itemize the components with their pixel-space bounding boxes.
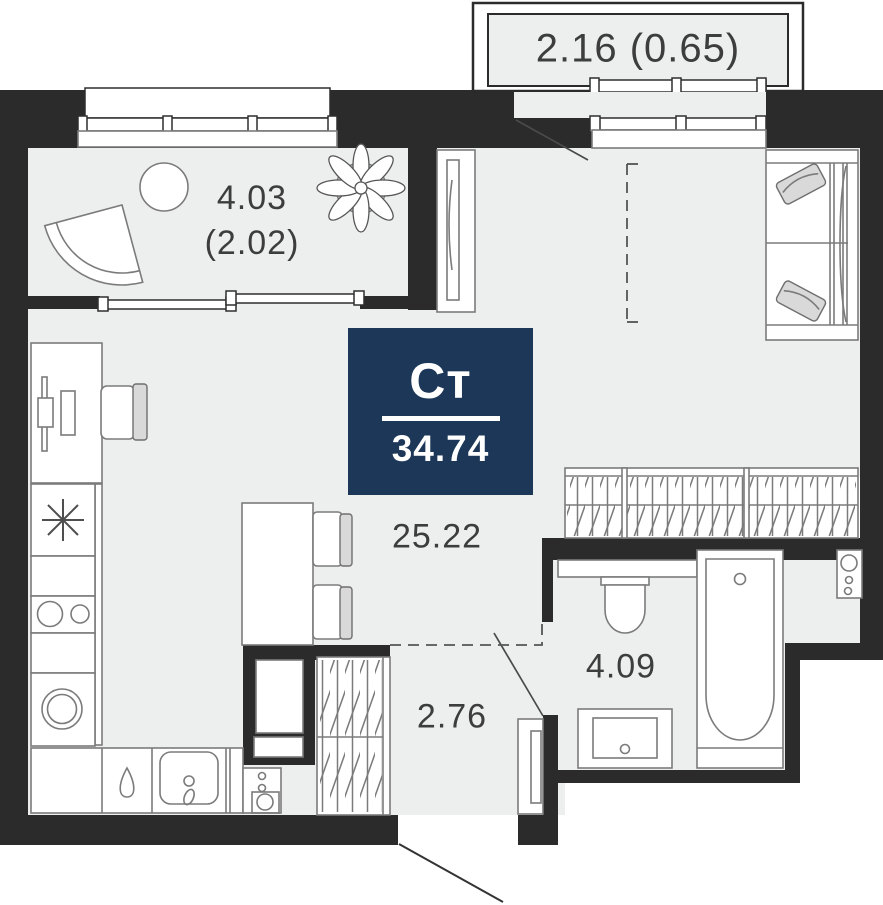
plant-icon: [317, 144, 405, 232]
electrical-panel: [243, 768, 281, 813]
sofa: [766, 150, 858, 340]
entrance-wardrobe: [317, 657, 390, 815]
fridge: [31, 484, 95, 556]
dining-chair: [313, 512, 352, 566]
floor-plan: 2.16 (0.65) 4.03 (2.02) 25.22 2.76 4.09 …: [0, 0, 883, 905]
balcony-top-area-label: 2.16 (0.65): [536, 27, 740, 72]
balcony-left-area-label: 4.03 (2.02): [205, 176, 300, 266]
balcony-left-area-paren: (2.02): [205, 221, 300, 266]
balcony-left-area-value: 4.03: [205, 176, 300, 221]
balcony-round-table: [140, 163, 188, 211]
unit-total-area: 34.74: [392, 430, 490, 467]
bathroom-sink: [578, 709, 672, 768]
wardrobe-hanging-rail: [565, 468, 858, 538]
duct-shaft: [254, 660, 303, 757]
meter-panel: [837, 550, 862, 598]
dining-table: [242, 503, 313, 645]
bathtub: [697, 550, 783, 768]
living-area-label: 25.22: [392, 515, 482, 560]
desk-chair: [101, 384, 147, 440]
dining-chair: [313, 585, 352, 639]
badge-divider: [382, 416, 500, 421]
bathroom-shelf: [558, 560, 697, 577]
kitchen-counter-bottom: [31, 748, 243, 813]
stove-burners: [31, 596, 95, 633]
tall-cabinet: [437, 150, 475, 312]
kitchen-cabinet: [31, 556, 95, 596]
unit-type-label: Ст: [409, 356, 472, 406]
kitchen-cabinet: [31, 633, 95, 673]
counter-edge: [95, 484, 102, 745]
desk: [31, 343, 102, 483]
washing-machine: [31, 673, 95, 746]
hall-area-label: 2.76: [417, 695, 487, 740]
snowflake-icon: [42, 499, 84, 541]
bathroom-area-label: 4.09: [586, 645, 656, 690]
entrance-door-swing: [399, 844, 503, 902]
left-window: [78, 88, 337, 147]
unit-area-badge: Ст 34.74: [348, 328, 533, 495]
